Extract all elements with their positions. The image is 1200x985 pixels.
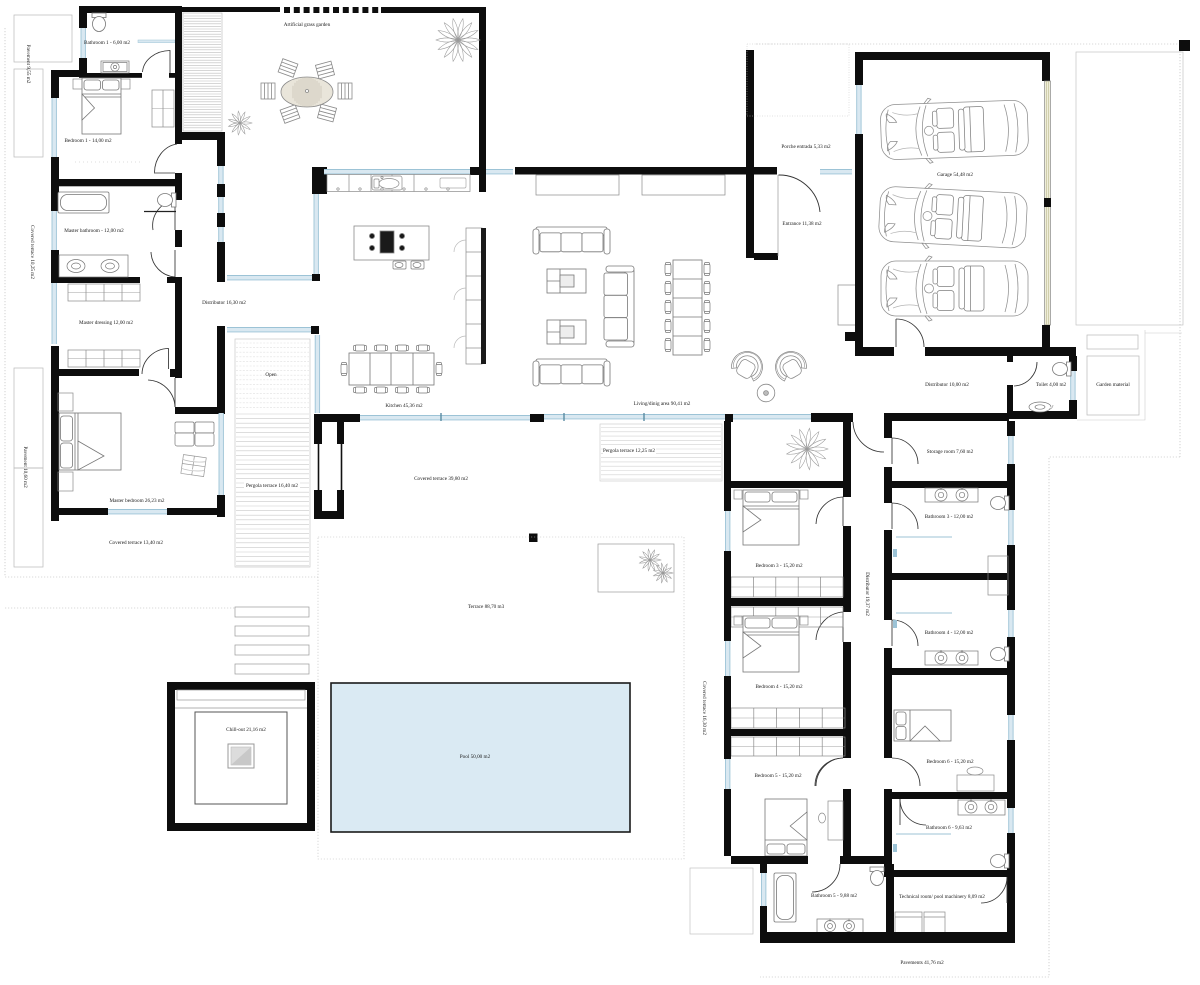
svg-text:Master bedroom 26,23 m2: Master bedroom 26,23 m2	[109, 498, 164, 504]
svg-text:Bedroom 3 - 15,20 m2: Bedroom 3 - 15,20 m2	[755, 563, 803, 569]
svg-text:Master bathroom - 12,00 m2: Master bathroom - 12,00 m2	[64, 228, 124, 234]
svg-text:Distributor 19,37 m2: Distributor 19,37 m2	[864, 572, 870, 616]
svg-text:Bathroom 5 - 9,88 m2: Bathroom 5 - 9,88 m2	[811, 893, 857, 899]
svg-text:Bedroom 6 - 15,20 m2: Bedroom 6 - 15,20 m2	[926, 759, 974, 765]
svg-text:Porche entrada 5,33 m2: Porche entrada 5,33 m2	[781, 144, 831, 150]
svg-text:Bedroom 4 - 15,20 m2: Bedroom 4 - 15,20 m2	[755, 684, 803, 690]
svg-text:Master dressing 12,00 m2: Master dressing 12,00 m2	[79, 320, 133, 326]
svg-text:Bedroom 5 - 15,20 m2: Bedroom 5 - 15,20 m2	[754, 773, 802, 779]
svg-text:Pergola terrace 16,40 m2: Pergola terrace 16,40 m2	[246, 483, 298, 489]
svg-text:Bathroom 4 - 12,00 m2: Bathroom 4 - 12,00 m2	[925, 630, 974, 636]
svg-text:Pavement 9,55 m2: Pavement 9,55 m2	[25, 45, 31, 84]
svg-text:Covered terrace 16,30 m2: Covered terrace 16,30 m2	[701, 681, 707, 735]
svg-text:Pool 50,00 m2: Pool 50,00 m2	[460, 754, 491, 760]
svg-text:Distributor 10,00 m2: Distributor 10,00 m2	[925, 382, 969, 388]
svg-text:Storage room 7,60 m2: Storage room 7,60 m2	[927, 449, 974, 455]
svg-text:Bathroom 3 - 12,00 m2: Bathroom 3 - 12,00 m2	[925, 514, 974, 520]
svg-text:Covered terrace 13,40 m2: Covered terrace 13,40 m2	[109, 540, 163, 546]
svg-text:Artificial grass garden: Artificial grass garden	[284, 21, 331, 28]
svg-text:Distributor 16,30 m2: Distributor 16,30 m2	[202, 300, 246, 306]
svg-text:Living/dinig area 90,41 m2: Living/dinig area 90,41 m2	[634, 401, 691, 407]
svg-text:Toilet 4,00 m2: Toilet 4,00 m2	[1036, 382, 1067, 388]
svg-text:Technical room/ pool machinery: Technical room/ pool machinery 8,09 m2	[899, 894, 985, 900]
svg-text:Open: Open	[265, 372, 277, 378]
svg-text:Garage 54,48 m2: Garage 54,48 m2	[937, 172, 973, 178]
svg-text:Bedroom 1 - 14,00 m2: Bedroom 1 - 14,00 m2	[64, 138, 112, 144]
svg-text:Pergola terrace 12,25 m2: Pergola terrace 12,25 m2	[603, 448, 655, 454]
svg-text:Bathroom 1 - 6,00 m2: Bathroom 1 - 6,00 m2	[84, 40, 130, 46]
svg-text:Pavement 10,60 m2: Pavement 10,60 m2	[22, 446, 28, 488]
svg-text:Kitchen 45,36 m2: Kitchen 45,36 m2	[385, 403, 423, 409]
svg-text:Chill-out 21,16 m2: Chill-out 21,16 m2	[226, 727, 266, 733]
svg-text:Bathroom 6 - 9,63 m2: Bathroom 6 - 9,63 m2	[926, 825, 972, 831]
svg-text:Pavements 41,76 m2: Pavements 41,76 m2	[900, 960, 944, 966]
svg-text:Covered terrace 10,25 m2: Covered terrace 10,25 m2	[29, 225, 35, 279]
svg-text:Entrance 11,38 m2: Entrance 11,38 m2	[782, 221, 822, 227]
svg-text:Covered terrace 39,80 m2: Covered terrace 39,80 m2	[414, 476, 468, 482]
svg-text:Garden material: Garden material	[1096, 382, 1130, 388]
svg-text:Terrace 88,70 m3: Terrace 88,70 m3	[468, 604, 505, 610]
